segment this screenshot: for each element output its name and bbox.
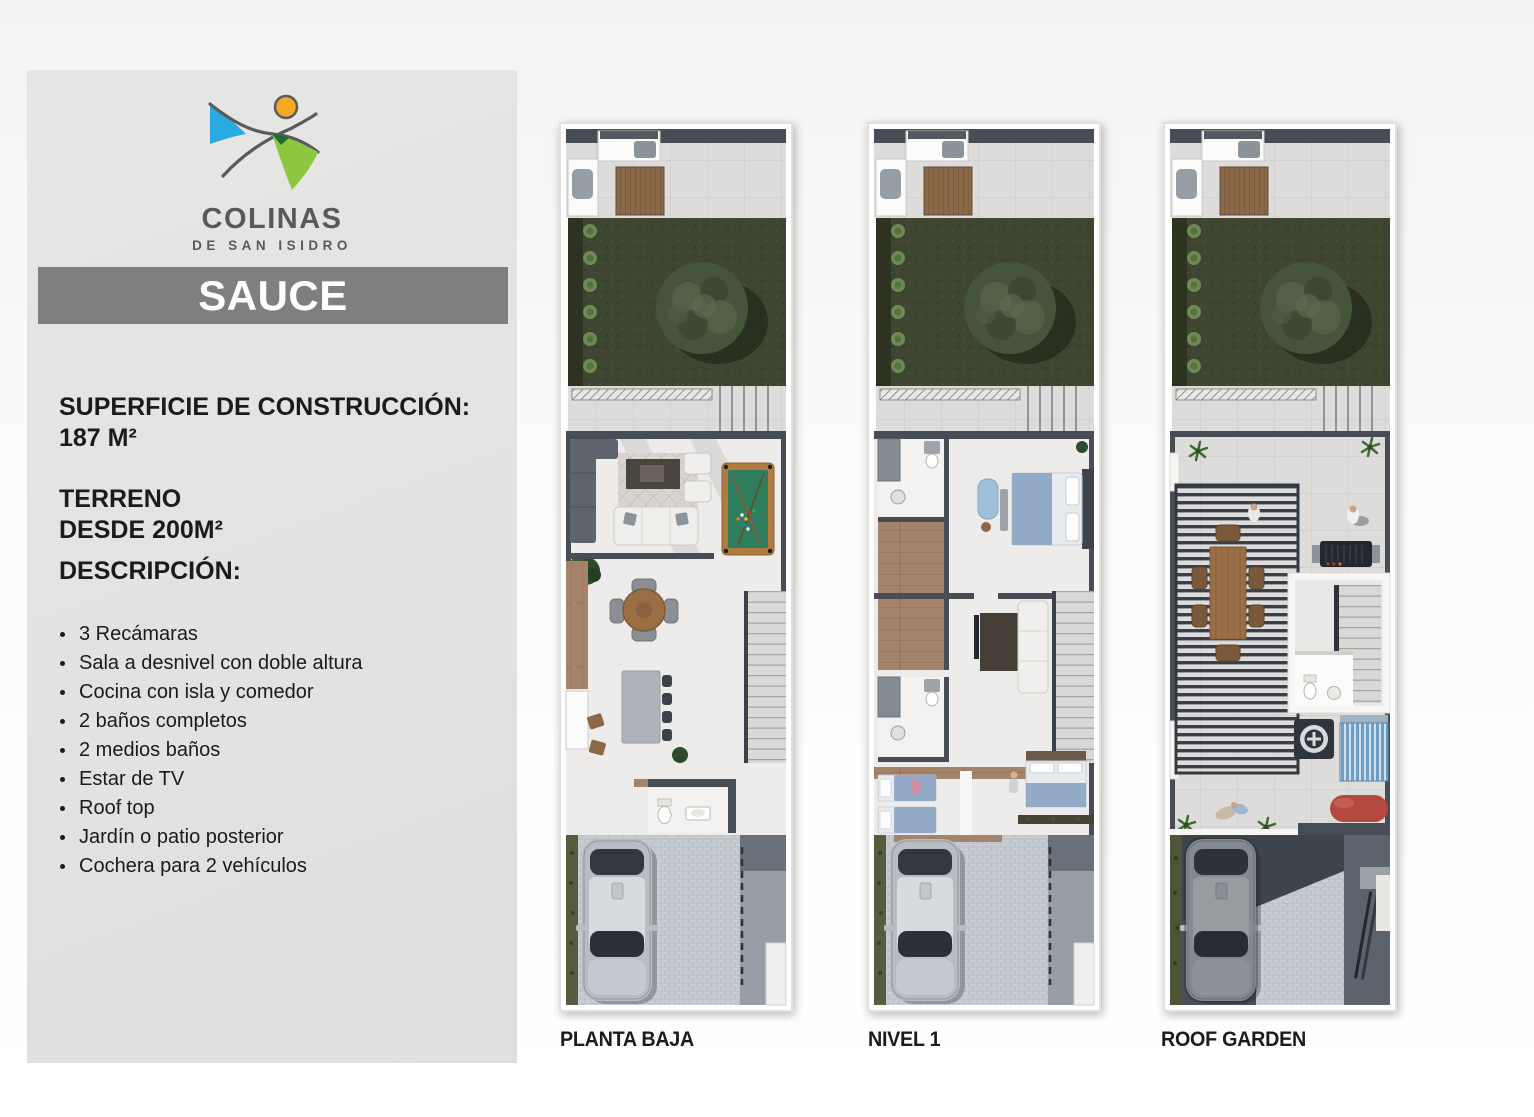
list-item: 3 Recámaras [60, 620, 490, 649]
construction-label: SUPERFICIE DE CONSTRUCCIÓN: [59, 392, 489, 423]
feature-text: 2 baños completos [79, 707, 247, 736]
terrain-block: TERRENO DESDE 200M² [59, 484, 489, 546]
person [911, 780, 921, 794]
bullet-icon [60, 864, 65, 869]
desk [566, 691, 588, 749]
roof-garden-level [1170, 431, 1390, 836]
model-name: SAUCE [198, 272, 348, 320]
list-item: Jardín o patio posterior [60, 823, 490, 852]
construction-value: 187 M² [59, 423, 489, 454]
bullet-icon [60, 661, 65, 666]
brand-name: COLINAS [27, 203, 517, 236]
list-item: 2 baños completos [60, 707, 490, 736]
rug-dark [980, 613, 1018, 671]
armchair [684, 453, 711, 474]
colinas-logo-icon [208, 92, 320, 196]
staircase [1052, 591, 1094, 763]
garden-patio-section [566, 129, 786, 431]
bullet-icon [60, 777, 65, 782]
construction-block: SUPERFICIE DE CONSTRUCCIÓN: 187 M² [59, 392, 489, 454]
driveway-section [1170, 835, 1390, 1005]
model-name-banner: SAUCE [38, 267, 508, 324]
feature-text: Roof top [79, 794, 155, 823]
living-dining-level [566, 431, 786, 835]
ac-unit [1294, 719, 1334, 759]
list-item: Roof top [60, 794, 490, 823]
chaise-lounge [978, 479, 998, 519]
bedrooms-level [874, 431, 1094, 835]
list-item: 2 medios baños [60, 736, 490, 765]
bbq-grill [1312, 541, 1380, 567]
plan-label-planta-baja: PLANTA BAJA [560, 1028, 694, 1052]
sofa-white [1018, 601, 1048, 693]
feature-text: Jardín o patio posterior [79, 823, 284, 852]
bullet-icon [60, 748, 65, 753]
plant [1076, 441, 1088, 453]
list-item: Sala a desnivel con doble altura [60, 649, 490, 678]
list-item: Cochera para 2 vehículos [60, 852, 490, 881]
features-list: 3 Recámaras Sala a desnivel con doble al… [60, 620, 490, 881]
plan-label-roof-garden: ROOF GARDEN [1161, 1028, 1306, 1052]
pool-table [722, 463, 774, 555]
bullet-icon [60, 806, 65, 811]
gas-tank [1330, 795, 1388, 822]
garden-patio-section [874, 129, 1094, 431]
plan-label-nivel-1: NIVEL 1 [868, 1028, 940, 1052]
brand-subtitle: DE SAN ISIDRO [27, 238, 517, 253]
solar-heater [1340, 715, 1388, 781]
half-bath [634, 779, 736, 833]
bullet-icon [60, 632, 65, 637]
stair-enclosure [1288, 573, 1390, 713]
feature-text: Cocina con isla y comedor [79, 678, 314, 707]
cabinet-wood [566, 561, 588, 689]
feature-text: 2 medios baños [79, 736, 220, 765]
feature-text: Estar de TV [79, 765, 184, 794]
bullet-icon [60, 690, 65, 695]
bed [878, 775, 936, 801]
list-item: Cocina con isla y comedor [60, 678, 490, 707]
bathroom-top [878, 439, 949, 523]
person [1011, 772, 1018, 779]
floor-plan-planta-baja [559, 122, 793, 1012]
car [576, 839, 658, 1004]
list-item: Estar de TV [60, 765, 490, 794]
driveway-section [566, 835, 786, 1005]
feature-text: 3 Recámaras [79, 620, 198, 649]
description-label: DESCRIPCIÓN: [59, 556, 489, 587]
terrain-value: DESDE 200M² [59, 515, 489, 546]
bullet-icon [60, 719, 65, 724]
bathroom-mid [878, 677, 949, 762]
bed [878, 807, 936, 833]
floor-plan-roof-garden [1163, 122, 1397, 1012]
feature-text: Sala a desnivel con doble altura [79, 649, 363, 678]
garden-patio-section [1170, 129, 1390, 431]
floor-plan-nivel-1 [867, 122, 1101, 1012]
car [884, 839, 966, 1004]
driveway-section [874, 835, 1094, 1005]
bullet-icon [60, 835, 65, 840]
terrain-label: TERRENO [59, 484, 489, 515]
armchair [684, 481, 711, 502]
plant [672, 747, 688, 763]
feature-text: Cochera para 2 vehículos [79, 852, 307, 881]
staircase [744, 591, 786, 763]
